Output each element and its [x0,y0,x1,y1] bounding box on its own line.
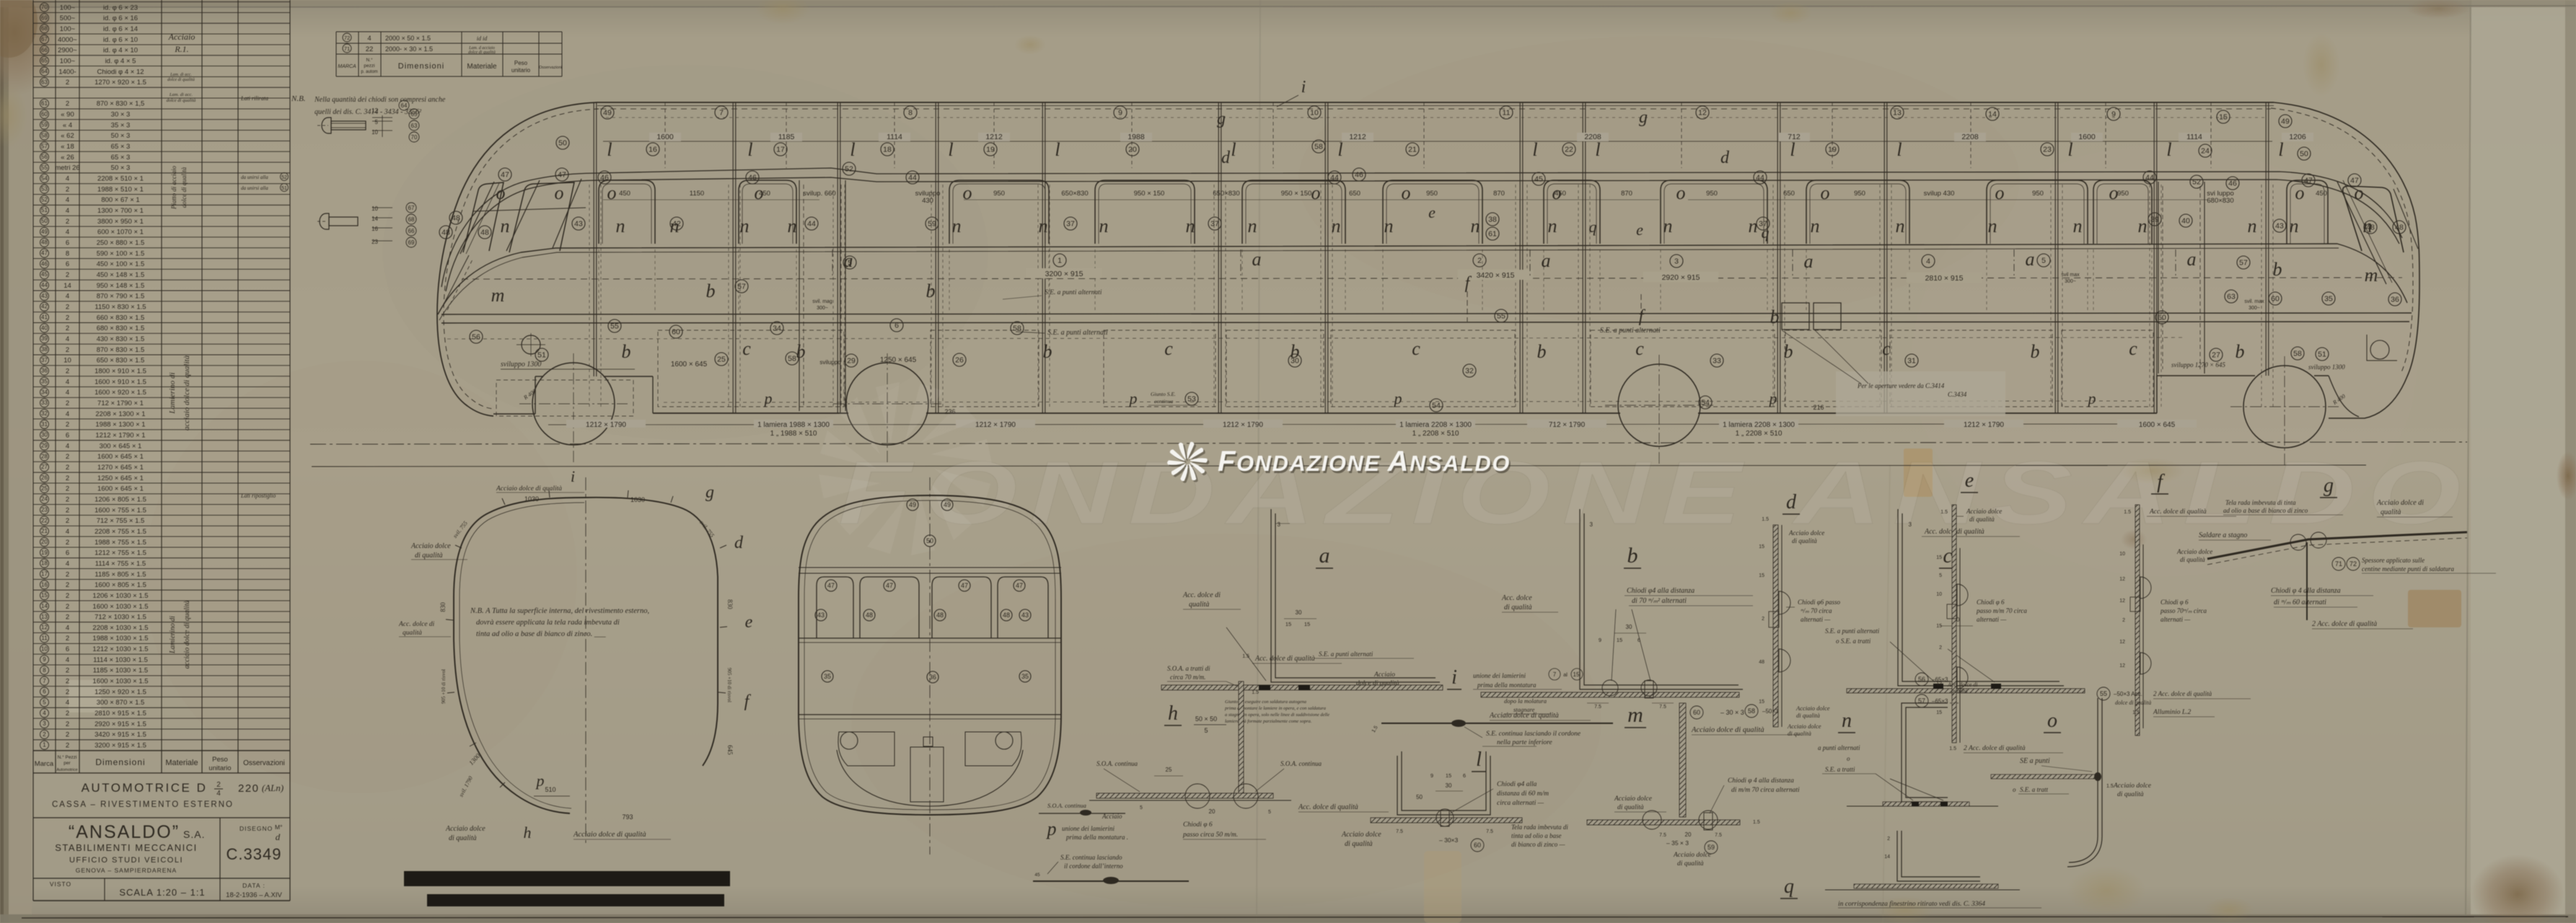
svg-text:44: 44 [2145,174,2154,182]
svg-text:Osservazioni: Osservazioni [539,66,562,70]
svg-text:52: 52 [2192,178,2201,187]
svg-text:o: o [2047,710,2057,732]
svg-text:n: n [1471,216,1480,237]
svg-text:36: 36 [2391,296,2399,304]
svg-text:1212 × 1790 × 1: 1212 × 1790 × 1 [95,431,145,439]
svg-text:650: 650 [1349,190,1360,198]
svg-text:15: 15 [1573,671,1580,678]
svg-text:35: 35 [2324,295,2333,304]
svg-text:2: 2 [66,667,69,675]
svg-text:b: b [1784,341,1793,362]
svg-text:GENOVA – SAMPIERDARENA: GENOVA – SAMPIERDARENA [76,867,177,874]
svg-text:500~: 500~ [60,14,76,22]
svg-text:510: 510 [545,786,555,793]
svg-text:1988 × 1030 × 1.5: 1988 × 1030 × 1.5 [92,635,148,642]
svg-text:Lam. di acc.: Lam. di acc. [170,73,192,77]
svg-text:2: 2 [2122,618,2125,623]
svg-text:1 „ 1988 × 510: 1 „ 1988 × 510 [770,430,817,438]
svg-text:n: n [1811,216,1820,237]
svg-text:a punti alternati: a punti alternati [1818,744,1860,751]
svg-text:37: 37 [1210,220,1219,229]
svg-text:950: 950 [2032,190,2044,198]
svg-text:12: 12 [2119,577,2125,582]
svg-text:2000- × 30 × 1.5: 2000- × 30 × 1.5 [385,45,433,53]
svg-text:e: e [1636,221,1643,239]
svg-text:Lati rilirata: Lati rilirata [240,95,268,102]
svg-text:72: 72 [344,35,350,41]
svg-text:Peso: Peso [514,60,528,66]
svg-text:1212 × 1790: 1212 × 1790 [1223,421,1263,429]
svg-text:23: 23 [372,239,378,245]
svg-text:di qualità: di qualità [1345,840,1373,848]
svg-text:43: 43 [2275,222,2284,231]
svg-text:66: 66 [408,228,415,234]
svg-text:5: 5 [848,259,852,268]
svg-text:2000 × 50 × 1.5: 2000 × 50 × 1.5 [385,35,431,42]
svg-text:9: 9 [1430,772,1433,779]
svg-text:55: 55 [1497,312,1505,321]
svg-text:68: 68 [41,25,48,32]
svg-text:svilup. 660: svilup. 660 [803,190,835,198]
svg-text:i: i [1451,666,1457,689]
svg-text:950 × 150: 950 × 150 [1134,190,1165,198]
svg-text:54: 54 [1432,402,1441,410]
svg-text:id id: id id [477,35,488,42]
svg-text:l: l [2166,139,2171,160]
svg-text:2: 2 [66,710,69,717]
svg-text:48: 48 [2395,224,2404,232]
svg-text:35: 35 [41,379,48,385]
svg-text:Acc. dolce di qualità: Acc. dolce di qualità [1298,803,1358,811]
svg-text:3: 3 [1590,521,1593,528]
svg-text:Chiodi φ 6: Chiodi φ 6 [1183,821,1213,829]
svg-text:S.O.A. continua: S.O.A. continua [1096,760,1138,767]
svg-text:N.B.: N.B. [291,94,306,103]
svg-text:n: n [1663,216,1673,237]
svg-text:Saldare a stagno: Saldare a stagno [2199,531,2247,539]
svg-text:svil. mag: svil. mag [812,299,832,304]
svg-text:2: 2 [66,688,69,696]
svg-text:11: 11 [1503,109,1511,118]
svg-text:69: 69 [41,14,48,21]
svg-text:al: al [1563,671,1568,678]
svg-text:7: 7 [1553,671,1557,678]
svg-text:42: 42 [41,304,48,310]
svg-text:2: 2 [66,517,69,525]
svg-text:48: 48 [1003,611,1010,619]
svg-text:25: 25 [41,485,48,492]
svg-text:b: b [2273,259,2282,280]
svg-text:31: 31 [1907,357,1916,366]
svg-text:2: 2 [66,218,69,226]
svg-text:35 × 3: 35 × 3 [111,121,131,129]
svg-text:1114: 1114 [2186,133,2202,141]
svg-text:n: n [740,216,749,237]
svg-text:dovrà essere applicata la: dovrà essere applicata la tela rada imbe… [476,619,620,627]
svg-text:2: 2 [66,570,69,578]
svg-text:1 „ 2208 × 510: 1 „ 2208 × 510 [1412,430,1459,438]
svg-text:d: d [1786,491,1797,513]
svg-text:15: 15 [1304,621,1310,627]
svg-text:1114: 1114 [887,133,902,141]
svg-text:3200 × 915 × 1.5: 3200 × 915 × 1.5 [94,742,146,750]
svg-text:n: n [1186,216,1195,237]
svg-text:58: 58 [1748,707,1755,715]
svg-text:100~: 100~ [60,4,76,12]
svg-text:l: l [1532,139,1537,160]
svg-text:16: 16 [649,146,657,154]
svg-text:18-2-1936 – A.XIV: 18-2-1936 – A.XIV [226,891,282,899]
svg-text:49: 49 [603,109,612,118]
svg-text:15: 15 [2219,113,2228,122]
svg-text:Chiodi φ 4 alla distanza: Chiodi φ 4 alla distanza [2271,587,2341,595]
svg-text:30: 30 [1446,782,1452,789]
svg-text:quelli dei dis. C. 3414 - 3434: quelli dei dis. C. 3414 - 3434 - 3356² [315,108,422,116]
svg-text:alternati —: alternati — [1977,616,2007,623]
svg-text:48: 48 [2366,224,2375,232]
svg-text:67: 67 [41,36,48,43]
svg-text:39: 39 [2150,216,2159,224]
svg-text:42: 42 [672,220,681,229]
svg-text:b: b [622,341,631,362]
svg-text:prima della montatura: prima della montatura [1477,681,1537,689]
svg-text:–50×3: –50×3 [1762,708,1779,715]
svg-text:14: 14 [372,216,378,222]
svg-text:o: o [607,182,617,203]
svg-text:n: n [501,216,510,237]
svg-text:Acciaio dolce di qualità: Acciaio dolce di qualità [1691,726,1764,734]
svg-text:47: 47 [1016,582,1023,589]
svg-text:100~: 100~ [60,57,76,65]
svg-text:6: 6 [66,549,69,557]
svg-text:STABILIMENTI MECCANICI: STABILIMENTI MECCANICI [55,842,197,853]
svg-text:21: 21 [41,528,48,534]
svg-text:5: 5 [2041,257,2046,265]
svg-text:30: 30 [1626,624,1632,630]
svg-text:15: 15 [1936,624,1942,629]
svg-text:Lati ripostiglio: Lati ripostiglio [240,493,276,499]
svg-text:Piatto di acciaio: Piatto di acciaio [170,166,177,210]
svg-text:l: l [1337,139,1342,160]
svg-text:1114 × 1030 × 1.5: 1114 × 1030 × 1.5 [93,656,148,664]
svg-text:Acciaio dolce: Acciaio dolce [445,825,485,833]
svg-text:59: 59 [928,220,936,229]
svg-text:passo 70ᵐ/ₘ circa: passo 70ᵐ/ₘ circa [2160,607,2207,614]
svg-text:S.E. continua lasciando il cor: S.E. continua lasciando il cordone [1486,730,1581,738]
svg-text:37: 37 [41,357,48,363]
svg-text:61: 61 [1488,230,1497,239]
svg-text:950: 950 [1706,190,1718,198]
svg-text:b: b [2031,341,2040,362]
svg-text:2208 × 1030 × 1.5: 2208 × 1030 × 1.5 [92,624,148,632]
svg-text:51: 51 [281,186,287,191]
svg-text:l: l [1055,139,1060,160]
svg-text:n: n [2290,216,2299,237]
svg-text:65: 65 [41,58,48,64]
svg-text:Acciaio dolce: Acciaio dolce [1788,529,1824,536]
svg-text:Chiodi φ 4 alla distanza: Chiodi φ 4 alla distanza [1728,777,1794,785]
svg-text:19: 19 [986,146,995,154]
svg-text:1206: 1206 [2289,133,2306,141]
svg-text:65 × 3: 65 × 3 [111,143,131,151]
svg-text:o: o [1676,182,1686,203]
svg-text:b: b [1770,306,1780,327]
svg-text:46: 46 [41,260,48,267]
svg-text:4: 4 [66,560,69,568]
svg-text:Tela rada imbevuta di: Tela rada imbevuta di [1511,823,1568,831]
svg-text:h: h [1168,702,1178,725]
svg-text:1212 × 755 × 1.5: 1212 × 755 × 1.5 [94,549,146,557]
svg-text:41: 41 [41,314,48,321]
svg-text:a: a [1252,249,1262,270]
svg-text:Chiodi φ 6: Chiodi φ 6 [2160,599,2189,606]
svg-text:o: o [1552,182,1562,203]
svg-text:49: 49 [944,501,951,508]
svg-text:45: 45 [1034,873,1040,878]
svg-text:50 × 3: 50 × 3 [111,132,131,140]
svg-text:n: n [1332,216,1341,237]
svg-text:2: 2 [66,421,69,429]
svg-text:C.3349: C.3349 [227,845,282,863]
svg-text:4: 4 [66,293,69,301]
svg-text:qualità: qualità [2381,508,2401,516]
svg-text:di qualità: di qualità [415,552,443,560]
svg-text:56: 56 [472,333,480,342]
svg-text:40: 40 [2181,217,2190,226]
svg-text:S.E. a tratt: S.E. a tratt [2020,786,2049,793]
svg-text:20: 20 [41,539,48,545]
svg-text:44: 44 [41,282,48,288]
svg-text:2920 × 915 × 1.5: 2920 × 915 × 1.5 [94,720,146,728]
svg-text:14: 14 [1884,854,1890,860]
svg-text:o: o [1402,182,1411,203]
svg-text:17: 17 [776,146,785,154]
svg-text:12: 12 [372,107,378,114]
svg-text:1600 × 1030 × 1.5: 1600 × 1030 × 1.5 [92,603,148,611]
svg-text:51: 51 [537,351,546,360]
svg-text:2 Acc. dolce di qualità: 2 Acc. dolce di qualità [2153,690,2212,697]
svg-text:645: 645 [726,745,734,755]
svg-text:pezzi: pezzi [364,63,374,69]
svg-text:d: d [734,534,744,552]
svg-text:50: 50 [558,139,567,148]
svg-text:29: 29 [41,443,48,449]
svg-text:da unirsi alla: da unirsi alla [241,185,268,191]
svg-text:2 Acc. dolce di qualità: 2 Acc. dolce di qualità [1964,745,2026,752]
svg-text:450 × 100 × 1.5: 450 × 100 × 1.5 [97,260,145,268]
svg-text:Chiodi φ4 alla distanza: Chiodi φ4 alla distanza [1627,587,1694,595]
svg-text:q: q [1589,218,1597,236]
svg-text:2: 2 [66,635,69,642]
svg-text:16: 16 [41,581,48,588]
svg-text:g: g [2324,474,2334,497]
svg-text:60: 60 [2271,295,2280,304]
svg-text:Acciaio dolce: Acciaio dolce [1673,852,1711,859]
svg-text:e: e [745,613,753,632]
svg-text:46: 46 [2228,180,2237,188]
svg-text:30: 30 [1291,357,1299,366]
svg-text:13: 13 [1893,109,1902,118]
svg-text:54: 54 [1701,399,1710,407]
svg-text:2: 2 [66,324,69,332]
svg-text:4: 4 [66,389,69,397]
svg-text:300~: 300~ [2248,306,2260,311]
svg-text:63: 63 [411,123,418,129]
svg-text:13: 13 [41,614,48,620]
svg-text:Acciaio dolce di qualità: Acciaio dolce di qualità [573,831,646,839]
svg-text:sviluppo 1270 × 645: sviluppo 1270 × 645 [2171,361,2225,368]
svg-text:a: a [1542,250,1551,271]
svg-text:15: 15 [1759,699,1764,705]
svg-text:S.A.: S.A. [183,829,205,840]
svg-text:1212: 1212 [1349,133,1366,141]
svg-text:dolce di qualità: dolce di qualità [167,98,196,103]
svg-text:793: 793 [622,813,633,821]
svg-text:qualità: qualità [403,630,422,637]
svg-text:S.E. a punti alternati: S.E. a punti alternati [1600,327,1661,335]
svg-text:lamiere già formate parzialme: lamiere già formate parzialmente come so… [1225,719,1312,724]
svg-text:nella parte inferiore: nella parte inferiore [1497,738,1552,746]
svg-text:46: 46 [600,174,609,182]
svg-text:1988: 1988 [1127,133,1145,141]
svg-text:870: 870 [1621,190,1632,198]
svg-text:di qualità: di qualità [1788,730,1811,737]
svg-text:Acciaio dolce di qualità: Acciaio dolce di qualità [496,485,562,493]
svg-text:N.° Pezzi: N.° Pezzi [58,754,77,760]
svg-text:58: 58 [1314,143,1323,151]
svg-text:52: 52 [41,196,48,203]
svg-text:Acc. dolce di: Acc. dolce di [398,621,435,628]
svg-text:qualità: qualità [1951,688,1968,694]
svg-text:2 Acc. dolce di qualità: 2 Acc. dolce di qualità [2312,620,2377,628]
svg-text:5: 5 [1268,810,1271,815]
svg-text:2: 2 [66,367,69,375]
svg-text:dolce di qualità: dolce di qualità [2115,699,2151,706]
svg-text:20: 20 [1128,146,1137,154]
svg-text:4: 4 [66,699,69,707]
svg-text:di qualità: di qualità [1617,804,1644,811]
svg-text:qualità: qualità [1189,601,1209,609]
svg-text:Chiodi φ 6: Chiodi φ 6 [1977,599,2005,606]
svg-text:Acciaio: Acciaio [1373,671,1395,679]
svg-text:37: 37 [1759,220,1767,229]
svg-text:905 +10 di risvol: 905 +10 di risvol [441,669,447,704]
svg-text:68: 68 [408,216,415,223]
svg-text:4: 4 [66,175,69,183]
svg-text:430 × 830 × 1.5: 430 × 830 × 1.5 [97,335,145,343]
svg-text:950 × 148 × 1.5: 950 × 148 × 1.5 [97,282,145,290]
svg-text:Giunto S.E.: Giunto S.E. [1151,391,1176,397]
svg-text:216: 216 [1813,404,1824,411]
svg-text:57: 57 [41,143,48,149]
svg-text:VISTO: VISTO [50,880,71,888]
svg-text:4: 4 [66,442,69,450]
svg-text:alternati —: alternati — [1801,616,1831,623]
svg-text:7.5: 7.5 [1396,829,1403,834]
svg-text:12: 12 [1698,109,1707,118]
svg-text:4: 4 [66,410,69,418]
svg-text:Nella quantità dei chiodi son: Nella quantità dei chiodi son compresi a… [314,96,446,104]
svg-text:C.3434: C.3434 [1948,391,1967,398]
svg-text:svil. max: svil. max [2244,299,2264,304]
svg-text:64: 64 [401,102,408,109]
svg-text:1300 × 700 × 1: 1300 × 700 × 1 [97,207,144,215]
svg-text:1988 × 1300 × 1: 1988 × 1300 × 1 [95,421,145,429]
svg-text:680 × 830 × 1.5: 680 × 830 × 1.5 [97,324,145,332]
svg-text:2: 2 [43,731,46,738]
svg-text:l: l [1231,139,1236,160]
svg-text:60: 60 [672,328,680,337]
svg-text:i: i [571,467,575,485]
svg-text:870: 870 [1493,190,1505,198]
svg-text:11: 11 [41,635,48,641]
svg-text:n: n [788,216,797,237]
svg-text:53: 53 [41,186,48,193]
svg-text:S.E. a punti alternati: S.E. a punti alternati [1319,650,1373,658]
svg-text:2: 2 [66,539,69,547]
svg-text:Acciaio dolce: Acciaio dolce [1341,831,1381,839]
svg-text:38: 38 [1488,216,1497,224]
svg-text:6: 6 [894,322,899,330]
svg-text:600 × 1070 × 1: 600 × 1070 × 1 [97,229,144,237]
svg-text:svilup 430: svilup 430 [1924,190,1955,198]
svg-text:45: 45 [41,271,48,278]
svg-text:47: 47 [558,171,566,180]
svg-text:1600 × 755 × 1.5: 1600 × 755 × 1.5 [94,506,146,514]
svg-text:1150: 1150 [690,190,704,198]
svg-text:950: 950 [2117,190,2129,198]
svg-text:DATA :: DATA : [242,882,265,889]
svg-text:– 30 × 3: – 30 × 3 [1720,709,1744,716]
svg-text:n: n [2248,216,2257,237]
svg-text:5: 5 [375,119,379,125]
svg-text:4: 4 [216,790,221,798]
svg-text:e: e [1965,469,1974,492]
svg-text:300~: 300~ [2065,279,2076,284]
svg-text:50: 50 [41,218,48,224]
svg-text:4: 4 [43,710,46,716]
svg-text:25: 25 [717,355,726,364]
svg-text:66: 66 [41,47,48,53]
svg-text:48: 48 [480,229,489,237]
svg-text:1.5: 1.5 [1242,654,1249,659]
svg-text:3800 × 950 × 1: 3800 × 950 × 1 [97,218,144,226]
svg-text:9: 9 [1118,109,1122,118]
svg-text:52: 52 [845,165,853,174]
svg-text:2: 2 [66,592,69,600]
svg-text:61: 61 [41,100,48,107]
svg-text:c: c [1164,338,1173,359]
svg-text:44: 44 [1756,174,1764,182]
svg-text:dolce di qualità: dolce di qualità [468,50,496,55]
svg-text:Dimensioni: Dimensioni [95,757,145,767]
svg-text:« 26: « 26 [61,154,74,162]
svg-text:51: 51 [41,207,48,213]
svg-text:Acciaio dolce: Acciaio dolce [410,542,451,550]
svg-text:1600 × 805 × 1.5: 1600 × 805 × 1.5 [94,581,146,589]
svg-text:« 90: « 90 [61,111,74,119]
svg-text:S.E. a punti alternati: S.E. a punti alternati [1825,627,1880,635]
svg-text:« 18: « 18 [61,143,74,151]
svg-text:65 × 3: 65 × 3 [111,154,131,162]
svg-text:1206 × 1030 × 1.5: 1206 × 1030 × 1.5 [92,592,148,600]
svg-text:18: 18 [883,146,892,154]
svg-text:di qualità: di qualità [2117,791,2144,798]
svg-text:14: 14 [1988,110,1997,119]
svg-text:n: n [2138,216,2148,237]
svg-text:FONDAZIONE ANSALDO: FONDAZIONE ANSALDO [838,443,2473,543]
svg-text:10: 10 [41,645,48,652]
